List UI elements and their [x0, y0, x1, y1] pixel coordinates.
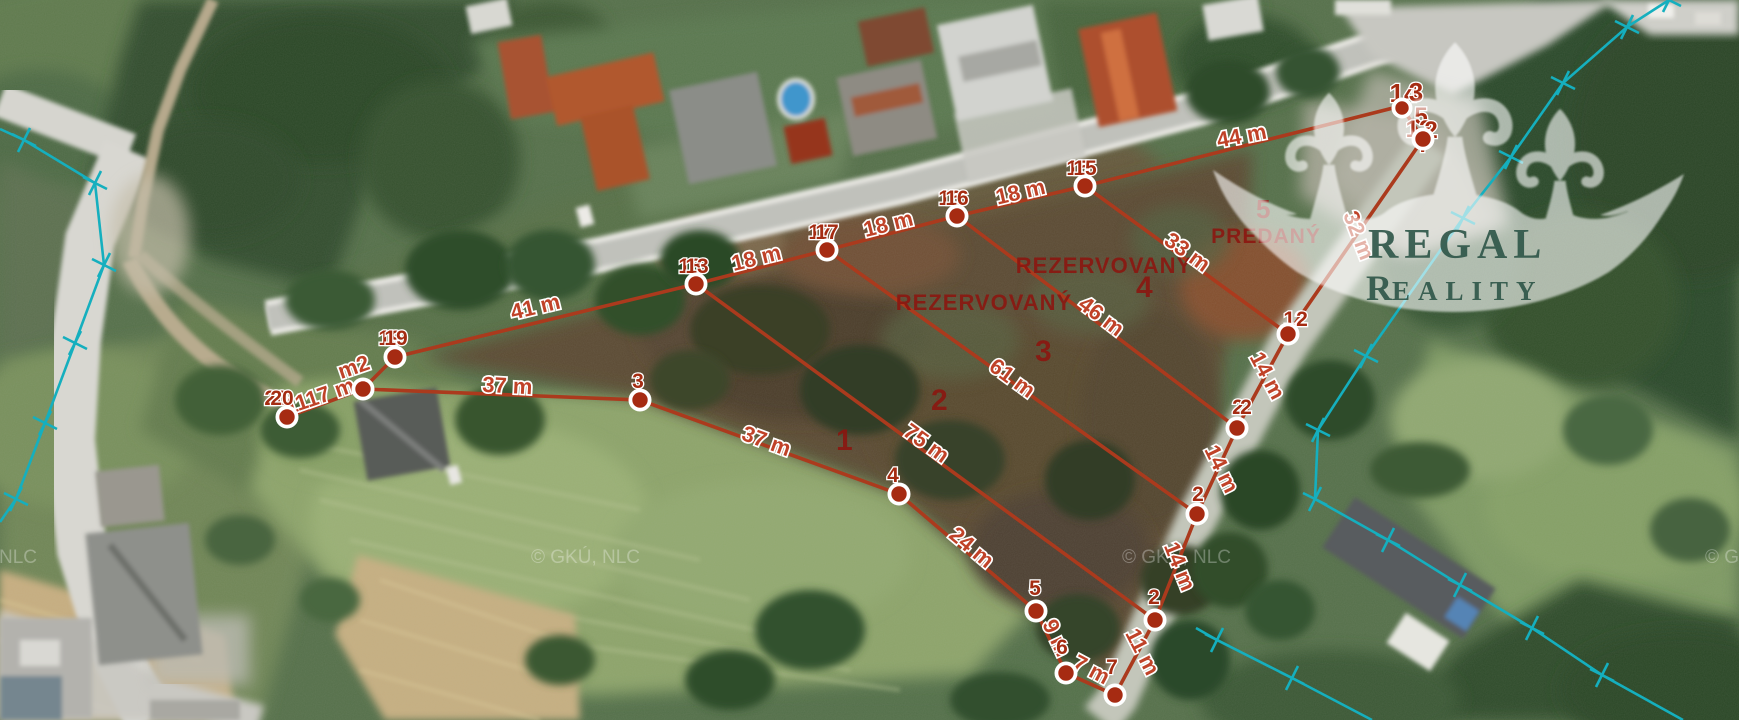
- svg-text:REGAL: REGAL: [1368, 222, 1547, 268]
- svg-text:REZERVOVANÝ: REZERVOVANÝ: [1016, 253, 1192, 278]
- svg-text:2: 2: [1240, 396, 1252, 419]
- svg-text:2: 2: [1296, 308, 1308, 331]
- svg-text:5: 5: [1029, 577, 1041, 600]
- svg-text:2: 2: [931, 384, 948, 417]
- svg-text:© GKÚ, NLC: © GKÚ, NLC: [0, 546, 37, 568]
- svg-text:© GKÚ, NLC: © GKÚ, NLC: [1705, 546, 1739, 568]
- svg-text:7: 7: [1106, 656, 1118, 679]
- svg-text:1: 1: [836, 424, 853, 457]
- svg-text:3: 3: [1035, 335, 1052, 368]
- svg-text:37 m: 37 m: [482, 372, 533, 400]
- svg-text:2: 2: [1148, 586, 1160, 609]
- svg-text:REZERVOVANÝ: REZERVOVANÝ: [896, 290, 1072, 315]
- svg-text:6: 6: [1056, 636, 1068, 659]
- svg-text:© GKÚ, NLC: © GKÚ, NLC: [531, 546, 640, 568]
